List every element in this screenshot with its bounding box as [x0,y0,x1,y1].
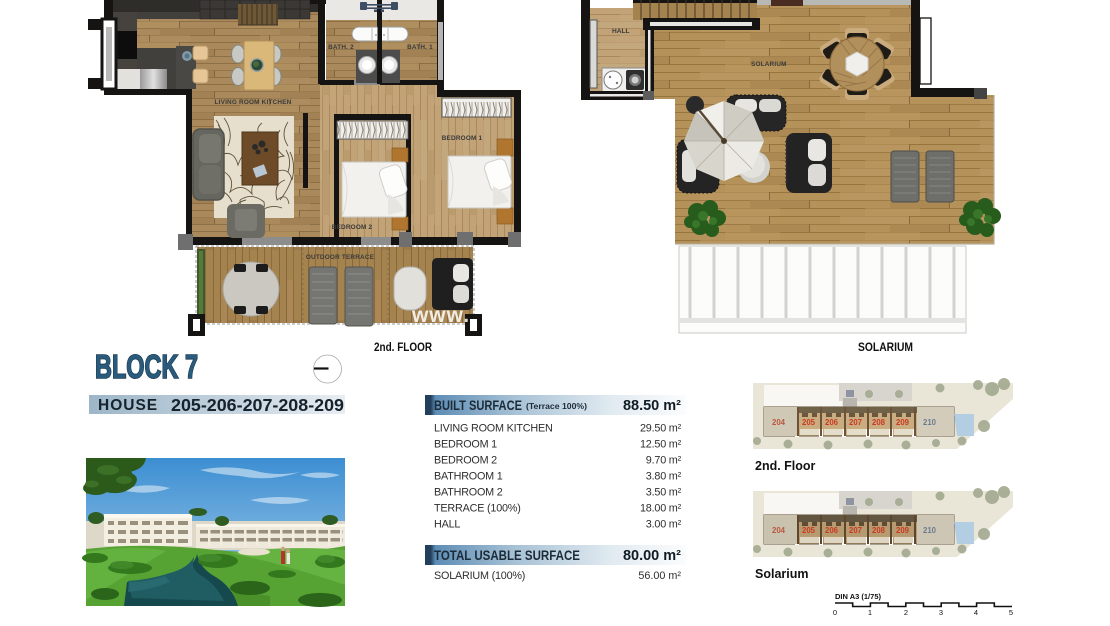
svg-text:3.50 m²: 3.50 m² [646,487,682,499]
svg-text:88.50 m²: 88.50 m² [623,398,681,414]
svg-text:SOLARIUM: SOLARIUM [858,340,913,354]
svg-text:(Terrace 100%): (Terrace 100%) [526,401,587,411]
svg-text:HALL: HALL [434,519,460,531]
svg-text:4: 4 [974,608,978,617]
svg-text:BEDROOM 1: BEDROOM 1 [442,135,483,142]
svg-text:TOTAL USABLE SURFACE: TOTAL USABLE SURFACE [434,548,580,563]
svg-text:208: 208 [872,418,886,427]
svg-text:2nd. Floor: 2nd. Floor [755,459,816,473]
svg-text:9.70 m²: 9.70 m² [646,455,682,467]
svg-text:56.00 m²: 56.00 m² [638,570,681,582]
svg-text:BATHROOM 2: BATHROOM 2 [434,487,503,499]
svg-text:BLOCK 7: BLOCK 7 [95,348,198,385]
svg-text:BEDROOM 1: BEDROOM 1 [434,439,497,451]
svg-text:206: 206 [825,418,839,427]
svg-text:205-206-207-208-209: 205-206-207-208-209 [171,395,344,415]
svg-text:BEDROOM 2: BEDROOM 2 [434,455,497,467]
svg-text:www.: www. [411,304,470,327]
svg-text:BATHROOM 1: BATHROOM 1 [434,471,503,483]
svg-text:TERRACE (100%): TERRACE (100%) [434,503,521,515]
svg-text:BUILT SURFACE: BUILT SURFACE [434,398,522,413]
svg-text:LIVING ROOM KITCHEN: LIVING ROOM KITCHEN [434,423,553,435]
svg-text:205: 205 [802,526,816,535]
svg-text:206: 206 [825,526,839,535]
svg-text:3.80 m²: 3.80 m² [646,471,682,483]
svg-text:209: 209 [896,526,910,535]
svg-text:0: 0 [833,608,837,617]
svg-text:205: 205 [802,418,816,427]
svg-text:2: 2 [904,608,908,617]
svg-text:208: 208 [872,526,886,535]
svg-text:80.00 m²: 80.00 m² [623,548,681,564]
svg-text:LIVING ROOM KITCHEN: LIVING ROOM KITCHEN [215,99,292,106]
svg-text:209: 209 [896,418,910,427]
svg-text:OUTDOOR TERRACE: OUTDOOR TERRACE [306,254,375,261]
svg-text:12.50 m²: 12.50 m² [640,439,682,451]
svg-text:18.00 m²: 18.00 m² [640,503,682,515]
svg-text:210: 210 [923,418,937,427]
svg-text:Solarium: Solarium [755,567,809,581]
svg-text:207: 207 [849,526,862,535]
svg-text:210: 210 [923,526,937,535]
svg-text:3: 3 [939,608,943,617]
svg-text:SOLARIUM: SOLARIUM [751,61,787,68]
svg-text:BATH. 2: BATH. 2 [328,44,354,51]
svg-text:29.50 m²: 29.50 m² [640,423,682,435]
svg-text:HALL: HALL [612,28,630,35]
svg-text:DIN A3 (1/75): DIN A3 (1/75) [835,592,881,601]
svg-text:3.00 m²: 3.00 m² [646,519,682,531]
svg-text:HOUSE: HOUSE [98,397,158,414]
svg-text:1: 1 [868,608,872,617]
svg-text:5: 5 [1009,608,1013,617]
svg-text:BATH. 1: BATH. 1 [407,44,433,51]
svg-text:BEDROOM 2: BEDROOM 2 [332,224,373,231]
svg-text:207: 207 [849,418,862,427]
svg-text:2nd. FLOOR: 2nd. FLOOR [374,340,432,354]
svg-text:SOLARIUM (100%): SOLARIUM (100%) [434,570,525,582]
svg-text:204: 204 [772,418,786,427]
svg-text:204: 204 [772,526,786,535]
